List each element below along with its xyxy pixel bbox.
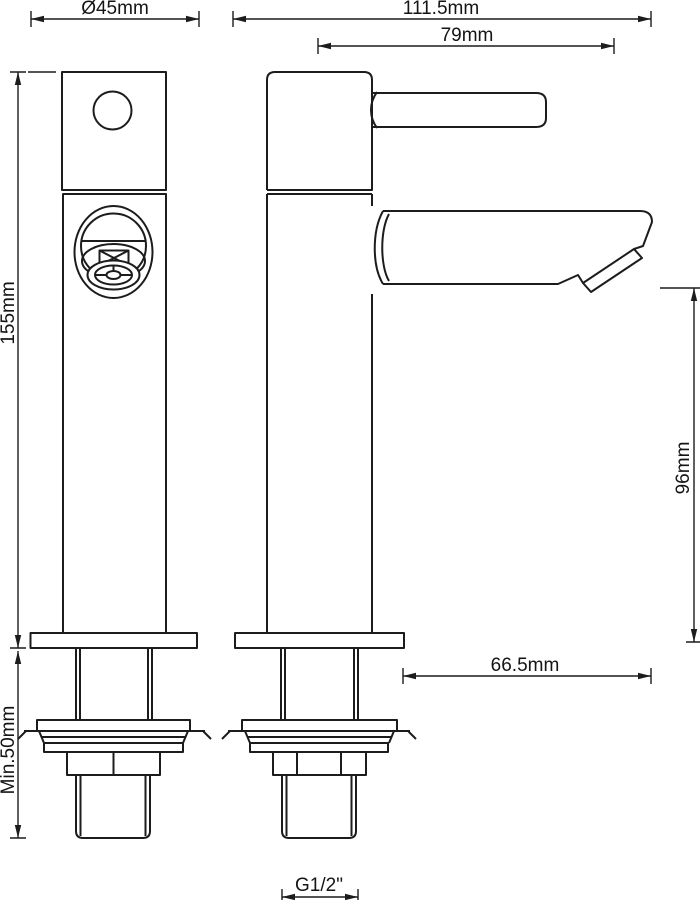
arrow-left xyxy=(318,43,331,49)
arrow-down xyxy=(15,635,21,648)
faucet-technical-drawing: Ø45mm 111.5mm 79mm 155mm Min.50mm xyxy=(0,0,700,900)
dim-label-spout-overhang: 66.5mm xyxy=(491,655,560,676)
side-spout-bottom xyxy=(383,275,583,284)
front-view xyxy=(18,72,211,838)
arrow-down xyxy=(15,825,21,838)
arrow-up xyxy=(691,288,697,301)
side-flange xyxy=(235,633,404,648)
front-valve-detail xyxy=(75,206,153,298)
arrow-up xyxy=(15,651,21,664)
front-handle-hole xyxy=(94,92,132,130)
side-handle-lever xyxy=(372,93,546,127)
dim-label-flange-diameter: Ø45mm xyxy=(81,0,149,19)
valve-wheel-hub xyxy=(107,271,121,279)
arrow-right xyxy=(638,16,651,22)
arrow-left xyxy=(233,16,246,22)
arrow-left xyxy=(31,16,44,22)
front-body-top-outline xyxy=(62,72,166,190)
arrow-down xyxy=(691,629,697,642)
front-cone xyxy=(39,731,188,743)
front-shank-walls xyxy=(80,648,148,720)
dim-spout-overhang: 66.5mm xyxy=(403,655,651,684)
side-cone xyxy=(245,731,394,743)
side-thread-walls xyxy=(287,775,352,836)
side-locknut xyxy=(273,752,366,775)
front-flange xyxy=(31,633,198,648)
arrow-right xyxy=(638,673,651,679)
side-spout-collar xyxy=(375,211,389,284)
dim-spout-reach: 79mm xyxy=(318,25,614,54)
side-base-assembly xyxy=(222,633,416,838)
arrow-left xyxy=(403,673,416,679)
front-thread-pipe xyxy=(76,775,150,838)
dim-min-mounting-depth: Min.50mm xyxy=(0,651,26,838)
side-shank-walls xyxy=(285,648,354,720)
side-cone-band xyxy=(250,743,388,752)
arrow-right xyxy=(345,894,358,900)
arrow-right xyxy=(601,43,614,49)
front-cone-band xyxy=(44,743,183,752)
drawing-canvas: Ø45mm 111.5mm 79mm 155mm Min.50mm xyxy=(0,0,700,900)
side-thread-pipe xyxy=(282,775,356,838)
front-washer xyxy=(37,720,190,731)
front-thread-walls xyxy=(81,775,146,836)
dim-label-min-mounting-depth: Min.50mm xyxy=(0,706,19,795)
arrow-left xyxy=(282,894,295,900)
dim-label-spout-reach: 79mm xyxy=(441,25,494,46)
side-body-top-outline xyxy=(267,72,372,190)
side-locknut-facets xyxy=(297,752,341,775)
dimensions: Ø45mm 111.5mm 79mm 155mm Min.50mm xyxy=(0,0,700,900)
dim-line-155 xyxy=(10,72,56,648)
side-shank xyxy=(281,648,358,720)
dim-thread-size: G1/2" xyxy=(282,875,358,900)
dim-label-spout-outlet-height: 96mm xyxy=(673,442,694,495)
arrow-up xyxy=(15,72,21,85)
dim-body-height: 155mm xyxy=(0,72,56,648)
dim-flange-diameter: Ø45mm xyxy=(31,0,199,27)
dim-spout-outlet-height: 96mm xyxy=(660,288,700,642)
side-body-lower-outline xyxy=(267,194,372,633)
dim-label-body-height: 155mm xyxy=(0,281,19,344)
arrow-right xyxy=(186,16,199,22)
dim-label-overall-depth: 111.5mm xyxy=(403,0,479,19)
dim-overall-depth: 111.5mm xyxy=(233,0,651,27)
side-washer xyxy=(242,720,397,731)
dim-label-thread-size: G1/2" xyxy=(295,875,343,896)
side-spout-top xyxy=(383,211,652,249)
side-aerator xyxy=(583,249,642,292)
front-shank xyxy=(76,648,152,720)
side-view xyxy=(222,72,652,838)
front-base-assembly xyxy=(18,633,211,838)
